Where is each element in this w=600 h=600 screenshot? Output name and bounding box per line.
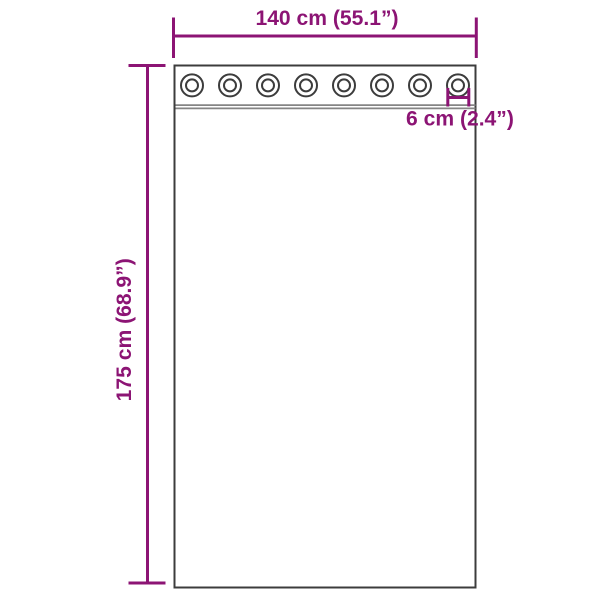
svg-text:6 cm (2.4”): 6 cm (2.4”) bbox=[406, 108, 514, 131]
svg-text:175 cm (68.9”): 175 cm (68.9”) bbox=[113, 258, 136, 401]
svg-text:140 cm (55.1”): 140 cm (55.1”) bbox=[255, 7, 398, 30]
